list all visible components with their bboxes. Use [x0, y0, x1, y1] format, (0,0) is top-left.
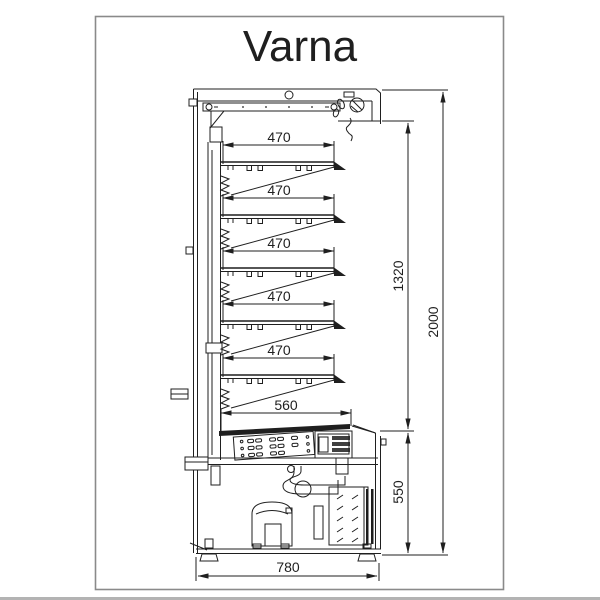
drawing-page: Varna — [0, 0, 600, 600]
drain-hole — [288, 466, 295, 473]
panel-joint — [210, 127, 222, 142]
air-grille — [233, 432, 314, 461]
shelf-depth-dimension: 470 — [267, 342, 291, 358]
panel-joint — [206, 343, 222, 353]
canopy-clip — [336, 98, 346, 110]
light-rail — [203, 103, 340, 111]
fan-scroll — [295, 481, 311, 497]
corner-gusset — [211, 111, 224, 127]
base-height-label: 550 — [390, 480, 406, 504]
evaporator-fan — [315, 426, 376, 458]
night-blind-roller — [350, 98, 364, 112]
divider-panel — [314, 506, 323, 539]
drawing-border — [96, 17, 504, 590]
foot — [358, 544, 376, 561]
shelf-depth-dimension: 470 — [267, 182, 291, 198]
foot — [200, 539, 218, 561]
machine-compartment — [190, 425, 386, 561]
overall-depth-label: 780 — [276, 559, 300, 575]
overall-height-label: 2000 — [425, 306, 441, 337]
shelf-depth-dimension: 470 — [267, 235, 291, 251]
wall-spacer — [186, 247, 193, 254]
opening-height-label: 1320 — [390, 260, 406, 291]
cabinet-section: 470 470 470 470 470 560 — [171, 89, 386, 561]
dimension-opening-height: 1320 — [380, 121, 414, 431]
rail-bracket — [185, 457, 208, 470]
shelf-depth-dimension: 470 — [267, 129, 291, 145]
dimension-overall-depth: 780 — [196, 557, 379, 581]
shelves: 470 470 470 470 470 — [221, 129, 346, 409]
deck-depth-dimension: 560 — [274, 397, 298, 413]
bottom-deck: 560 — [185, 397, 378, 485]
hanger-bracket — [211, 466, 220, 485]
shelf-depth-dimension: 470 — [267, 288, 291, 304]
drain-pipe — [336, 458, 348, 474]
back-wall — [171, 89, 222, 553]
dimension-base-height: 550 — [390, 433, 408, 553]
condenser — [329, 487, 374, 549]
technical-drawing: Varna — [0, 0, 600, 600]
page-title: Varna — [243, 22, 358, 71]
compressor — [252, 502, 292, 548]
